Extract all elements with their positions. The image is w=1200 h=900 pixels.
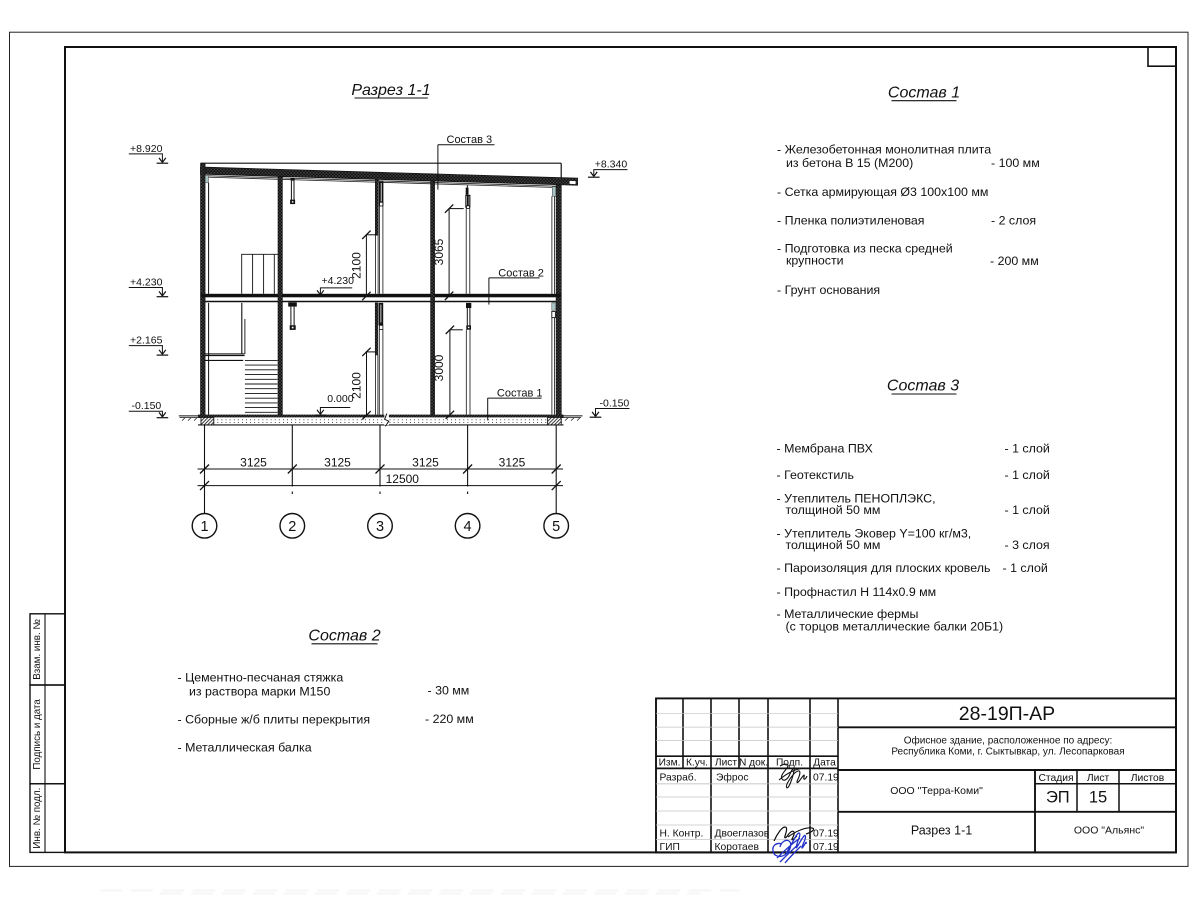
svg-text:Состав 1: Состав 1	[497, 387, 543, 399]
svg-text:Взам. инв. №: Взам. инв. №	[32, 619, 43, 680]
svg-text:4: 4	[464, 519, 472, 535]
svg-text:Инв. № подл.: Инв. № подл.	[32, 788, 43, 849]
svg-text:3000: 3000	[432, 354, 446, 381]
svg-text:3125: 3125	[324, 455, 351, 469]
svg-text:N док.: N док.	[739, 757, 768, 768]
svg-text:из бетона В 15 (М200): из бетона В 15 (М200)	[786, 156, 913, 170]
svg-text:Эфрос: Эфрос	[716, 772, 748, 784]
svg-text:07.19: 07.19	[813, 829, 839, 840]
svg-text:0.000: 0.000	[327, 393, 353, 405]
svg-text:3125: 3125	[499, 455, 526, 469]
svg-text:- Цементно-песчаная стяжка: - Цементно-песчаная стяжка	[178, 671, 344, 685]
svg-text:толщиной 50 мм: толщиной 50 мм	[786, 503, 881, 517]
svg-text:3065: 3065	[432, 238, 446, 265]
svg-text:- Геотекстиль: - Геотекстиль	[777, 468, 854, 482]
svg-text:- Мембрана ПВХ: - Мембрана ПВХ	[777, 442, 873, 456]
svg-text:3: 3	[376, 519, 384, 535]
svg-text:из раствора марки М150: из раствора марки М150	[189, 684, 330, 698]
svg-text:+4.230: +4.230	[322, 275, 355, 287]
svg-text:- Пленка полиэтиленовая: - Пленка полиэтиленовая	[777, 214, 925, 228]
svg-text:- 200 мм: - 200 мм	[990, 254, 1039, 268]
svg-text:- Профнастил Н 114х0.9 мм: - Профнастил Н 114х0.9 мм	[777, 585, 937, 599]
svg-text:- 1 слой: - 1 слой	[1005, 442, 1050, 456]
svg-text:12500: 12500	[386, 472, 420, 486]
svg-text:- Металлическая балка: - Металлическая балка	[178, 741, 312, 755]
svg-text:07.19: 07.19	[813, 773, 839, 784]
svg-text:Н. Контр.: Н. Контр.	[660, 829, 704, 840]
svg-text:Подпись и дата: Подпись и дата	[32, 699, 43, 770]
svg-text:- 1 слой: - 1 слой	[1003, 561, 1048, 575]
svg-text:Дата: Дата	[813, 757, 836, 768]
svg-text:Листов: Листов	[1131, 773, 1165, 784]
svg-text:+8.340: +8.340	[595, 159, 628, 171]
svg-text:- 2 слоя: - 2 слоя	[991, 214, 1036, 228]
svg-text:Разрез 1-1: Разрез 1-1	[351, 82, 430, 99]
svg-text:Двоеглазов: Двоеглазов	[715, 829, 770, 840]
svg-text:- 220 мм: - 220 мм	[425, 712, 474, 726]
svg-text:Состав 1: Состав 1	[888, 85, 960, 102]
svg-text:+2.165: +2.165	[130, 335, 163, 347]
svg-text:- 30 мм: - 30 мм	[428, 684, 470, 698]
svg-text:Лист: Лист	[715, 757, 737, 768]
svg-text:- Пароизоляция для плоских кро: - Пароизоляция для плоских кровель	[777, 561, 991, 575]
svg-text:Состав 3: Состав 3	[887, 378, 959, 395]
svg-text:ООО "Альянс": ООО "Альянс"	[1074, 824, 1144, 836]
svg-text:5: 5	[552, 519, 560, 535]
svg-text:+8.920: +8.920	[130, 143, 163, 155]
svg-text:+4.230: +4.230	[130, 277, 163, 289]
svg-text:28-19П-АР: 28-19П-АР	[959, 703, 1055, 725]
svg-text:- Сетка армирующая Ø3 100х100: - Сетка армирующая Ø3 100х100 мм	[777, 185, 988, 199]
svg-text:К.уч.: К.уч.	[686, 757, 708, 768]
svg-text:ЭП: ЭП	[1046, 789, 1070, 807]
svg-text:-0.150: -0.150	[600, 397, 630, 409]
svg-text:Республика Коми, г. Сыктывкар,: Республика Коми, г. Сыктывкар, ул. Лесоп…	[891, 746, 1124, 758]
svg-text:15: 15	[1089, 789, 1107, 807]
svg-text:- 1 слой: - 1 слой	[1005, 468, 1050, 482]
svg-text:- Сборные ж/б плиты перекрытия: - Сборные ж/б плиты перекрытия	[178, 713, 371, 727]
svg-text:Состав 2: Состав 2	[308, 628, 380, 645]
svg-text:1: 1	[200, 519, 208, 535]
svg-text:Офисное здание, расположенное: Офисное здание, расположенное по адресу:	[904, 734, 1113, 746]
svg-text:- Грунт основания: - Грунт основания	[777, 283, 880, 297]
svg-text:- Железобетонная монолитная п: - Железобетонная монолитная плита	[777, 142, 991, 156]
svg-text:2: 2	[288, 519, 296, 535]
svg-text:Коротаев: Коротаев	[715, 842, 760, 853]
svg-text:(с торцов металлические балки: (с торцов металлические балки 20Б1)	[786, 620, 1004, 634]
svg-text:Подп.: Подп.	[776, 757, 803, 768]
svg-text:ГИП: ГИП	[660, 842, 680, 853]
svg-text:Разраб.: Разраб.	[660, 772, 697, 784]
svg-text:крупности: крупности	[786, 254, 844, 268]
svg-text:- 100 мм: - 100 мм	[991, 156, 1040, 170]
svg-text:толщиной 50 мм: толщиной 50 мм	[786, 538, 881, 552]
svg-text:07.19: 07.19	[813, 842, 839, 853]
svg-text:- 3 слоя: - 3 слоя	[1005, 538, 1050, 552]
svg-text:Лист: Лист	[1087, 773, 1110, 784]
svg-text:3125: 3125	[240, 455, 267, 469]
svg-text:Разрез 1-1: Разрез 1-1	[911, 823, 972, 837]
svg-text:Изм.: Изм.	[659, 757, 681, 768]
svg-text:3125: 3125	[412, 455, 439, 469]
svg-text:ООО "Терра-Коми": ООО "Терра-Коми"	[890, 785, 983, 797]
svg-text:-0.150: -0.150	[132, 400, 162, 412]
svg-text:- 1 слой: - 1 слой	[1005, 503, 1050, 517]
svg-text:Стадия: Стадия	[1038, 773, 1073, 784]
